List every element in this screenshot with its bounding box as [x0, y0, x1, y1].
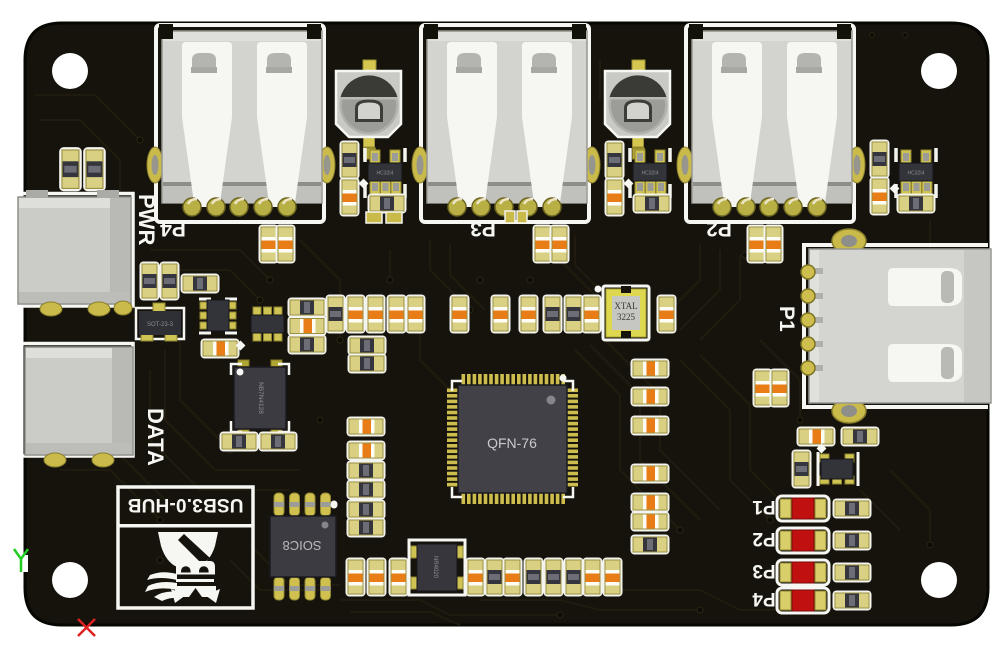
svg-text:P4: P4 [160, 217, 186, 240]
svg-text:P2: P2 [706, 217, 732, 240]
svg-text:P4: P4 [752, 588, 776, 609]
svg-text:XTAL: XTAL [614, 301, 637, 311]
svg-text:USB3.0-HUB: USB3.0-HUB [127, 494, 243, 515]
svg-text:P1: P1 [775, 306, 798, 332]
svg-text:NR4020: NR4020 [432, 556, 438, 579]
svg-text:NB7N4128: NB7N4128 [257, 382, 264, 414]
svg-text:P3: P3 [752, 560, 775, 581]
svg-text:DATA: DATA [143, 408, 168, 466]
svg-text:P1: P1 [752, 496, 776, 517]
svg-text:P2: P2 [752, 528, 775, 549]
svg-text:3225: 3225 [617, 312, 636, 322]
svg-text:QFN-76: QFN-76 [487, 435, 537, 451]
svg-text:P3: P3 [470, 217, 496, 240]
svg-text:SOT-23-3: SOT-23-3 [147, 322, 174, 328]
svg-text:SOIC8: SOIC8 [282, 538, 321, 553]
svg-text:PWR: PWR [134, 194, 159, 245]
